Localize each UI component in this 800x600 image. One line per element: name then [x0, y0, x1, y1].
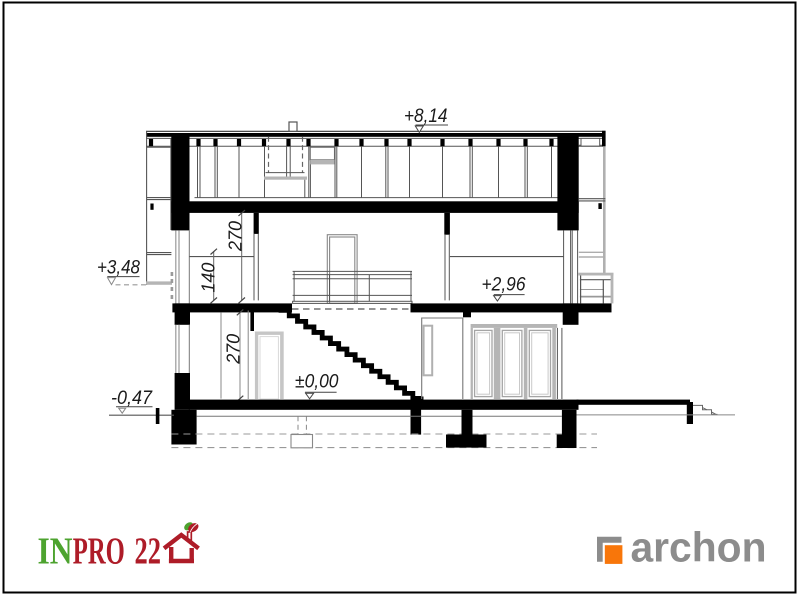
svg-text:±0,00: ±0,00: [295, 371, 339, 393]
svg-text:IN: IN: [38, 531, 73, 573]
svg-text:archon: archon: [631, 524, 767, 571]
svg-text:PRO: PRO: [73, 531, 125, 573]
svg-text:270: 270: [224, 220, 245, 252]
svg-text:+3,48: +3,48: [97, 257, 140, 279]
svg-text:+2,96: +2,96: [482, 274, 526, 296]
svg-text:+8,14: +8,14: [404, 105, 448, 127]
svg-text:270: 270: [223, 333, 244, 365]
svg-text:-0,47: -0,47: [111, 387, 153, 409]
svg-text:140: 140: [197, 262, 218, 293]
svg-text:22: 22: [135, 531, 162, 573]
